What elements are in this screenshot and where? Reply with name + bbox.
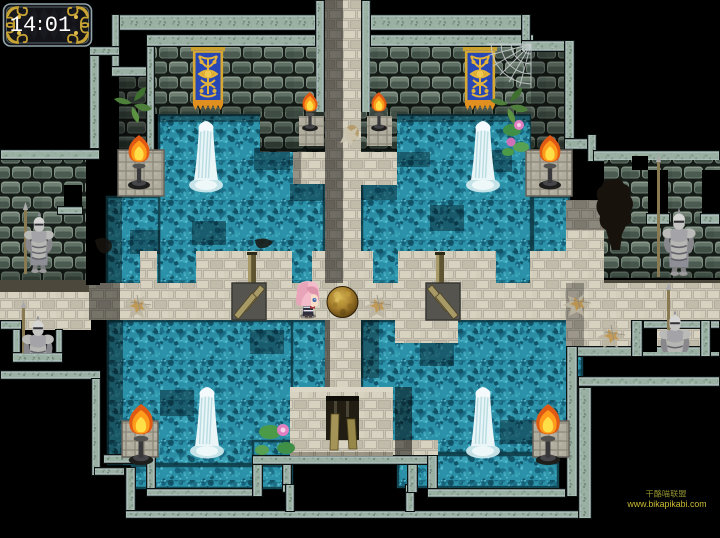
svg-text:www.bikapikabi.com: www.bikapikabi.com [626, 499, 706, 509]
svg-text:干酪喵联盟: 干酪喵联盟 [646, 489, 687, 499]
svg-text:14: 14 [10, 13, 36, 38]
svg-text::: : [35, 16, 46, 36]
svg-text:01: 01 [45, 13, 71, 38]
